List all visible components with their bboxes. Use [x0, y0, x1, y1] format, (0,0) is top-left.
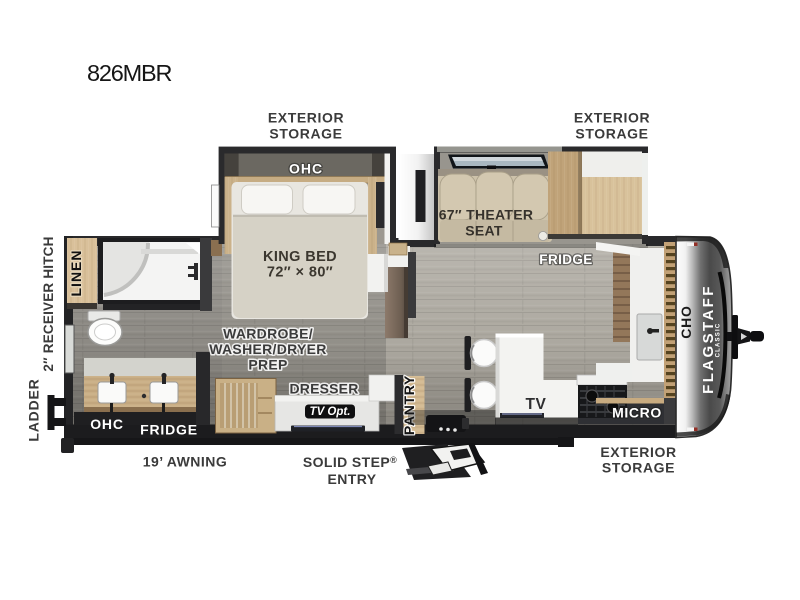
svg-text:PREP: PREP — [248, 357, 287, 373]
svg-text:826MBR: 826MBR — [87, 60, 171, 86]
svg-text:LADDER: LADDER — [26, 378, 42, 441]
svg-text:EXTERIOR: EXTERIOR — [600, 444, 676, 460]
svg-text:OHC: OHC — [90, 416, 124, 432]
svg-text:TV: TV — [525, 396, 546, 413]
svg-text:STORAGE: STORAGE — [575, 126, 648, 142]
svg-text:SOLID STEP®: SOLID STEP® — [303, 454, 397, 470]
svg-text:DRESSER: DRESSER — [289, 381, 358, 397]
svg-text:WARDROBE/: WARDROBE/ — [223, 326, 313, 342]
svg-text:WASHER/DRYER: WASHER/DRYER — [209, 341, 326, 357]
svg-text:19’ AWNING: 19’ AWNING — [143, 454, 228, 470]
svg-text:SEAT: SEAT — [465, 223, 503, 239]
svg-text:FLAGSTAFF: FLAGSTAFF — [700, 284, 717, 394]
svg-text:CHO: CHO — [678, 305, 694, 339]
svg-text:TV Opt.: TV Opt. — [310, 406, 351, 418]
svg-text:EXTERIOR: EXTERIOR — [574, 110, 650, 126]
svg-text:STORAGE: STORAGE — [602, 460, 675, 476]
svg-text:STORAGE: STORAGE — [269, 126, 342, 142]
svg-text:PANTRY: PANTRY — [401, 375, 417, 435]
svg-text:KING BED: KING BED — [263, 249, 337, 265]
svg-text:MICRO: MICRO — [612, 405, 662, 421]
svg-text:EXTERIOR: EXTERIOR — [268, 110, 344, 126]
svg-text:OHC: OHC — [289, 161, 323, 177]
svg-text:2″ RECEIVER HITCH: 2″ RECEIVER HITCH — [41, 236, 56, 371]
svg-text:ENTRY: ENTRY — [328, 471, 377, 487]
svg-text:FRIDGE: FRIDGE — [140, 422, 198, 438]
svg-text:FRIDGE: FRIDGE — [539, 252, 592, 267]
svg-text:67″ THEATER: 67″ THEATER — [439, 207, 534, 223]
svg-text:CLASSIC: CLASSIC — [716, 323, 722, 358]
svg-text:72″ × 80″: 72″ × 80″ — [267, 265, 333, 281]
svg-text:LINEN: LINEN — [68, 250, 84, 297]
